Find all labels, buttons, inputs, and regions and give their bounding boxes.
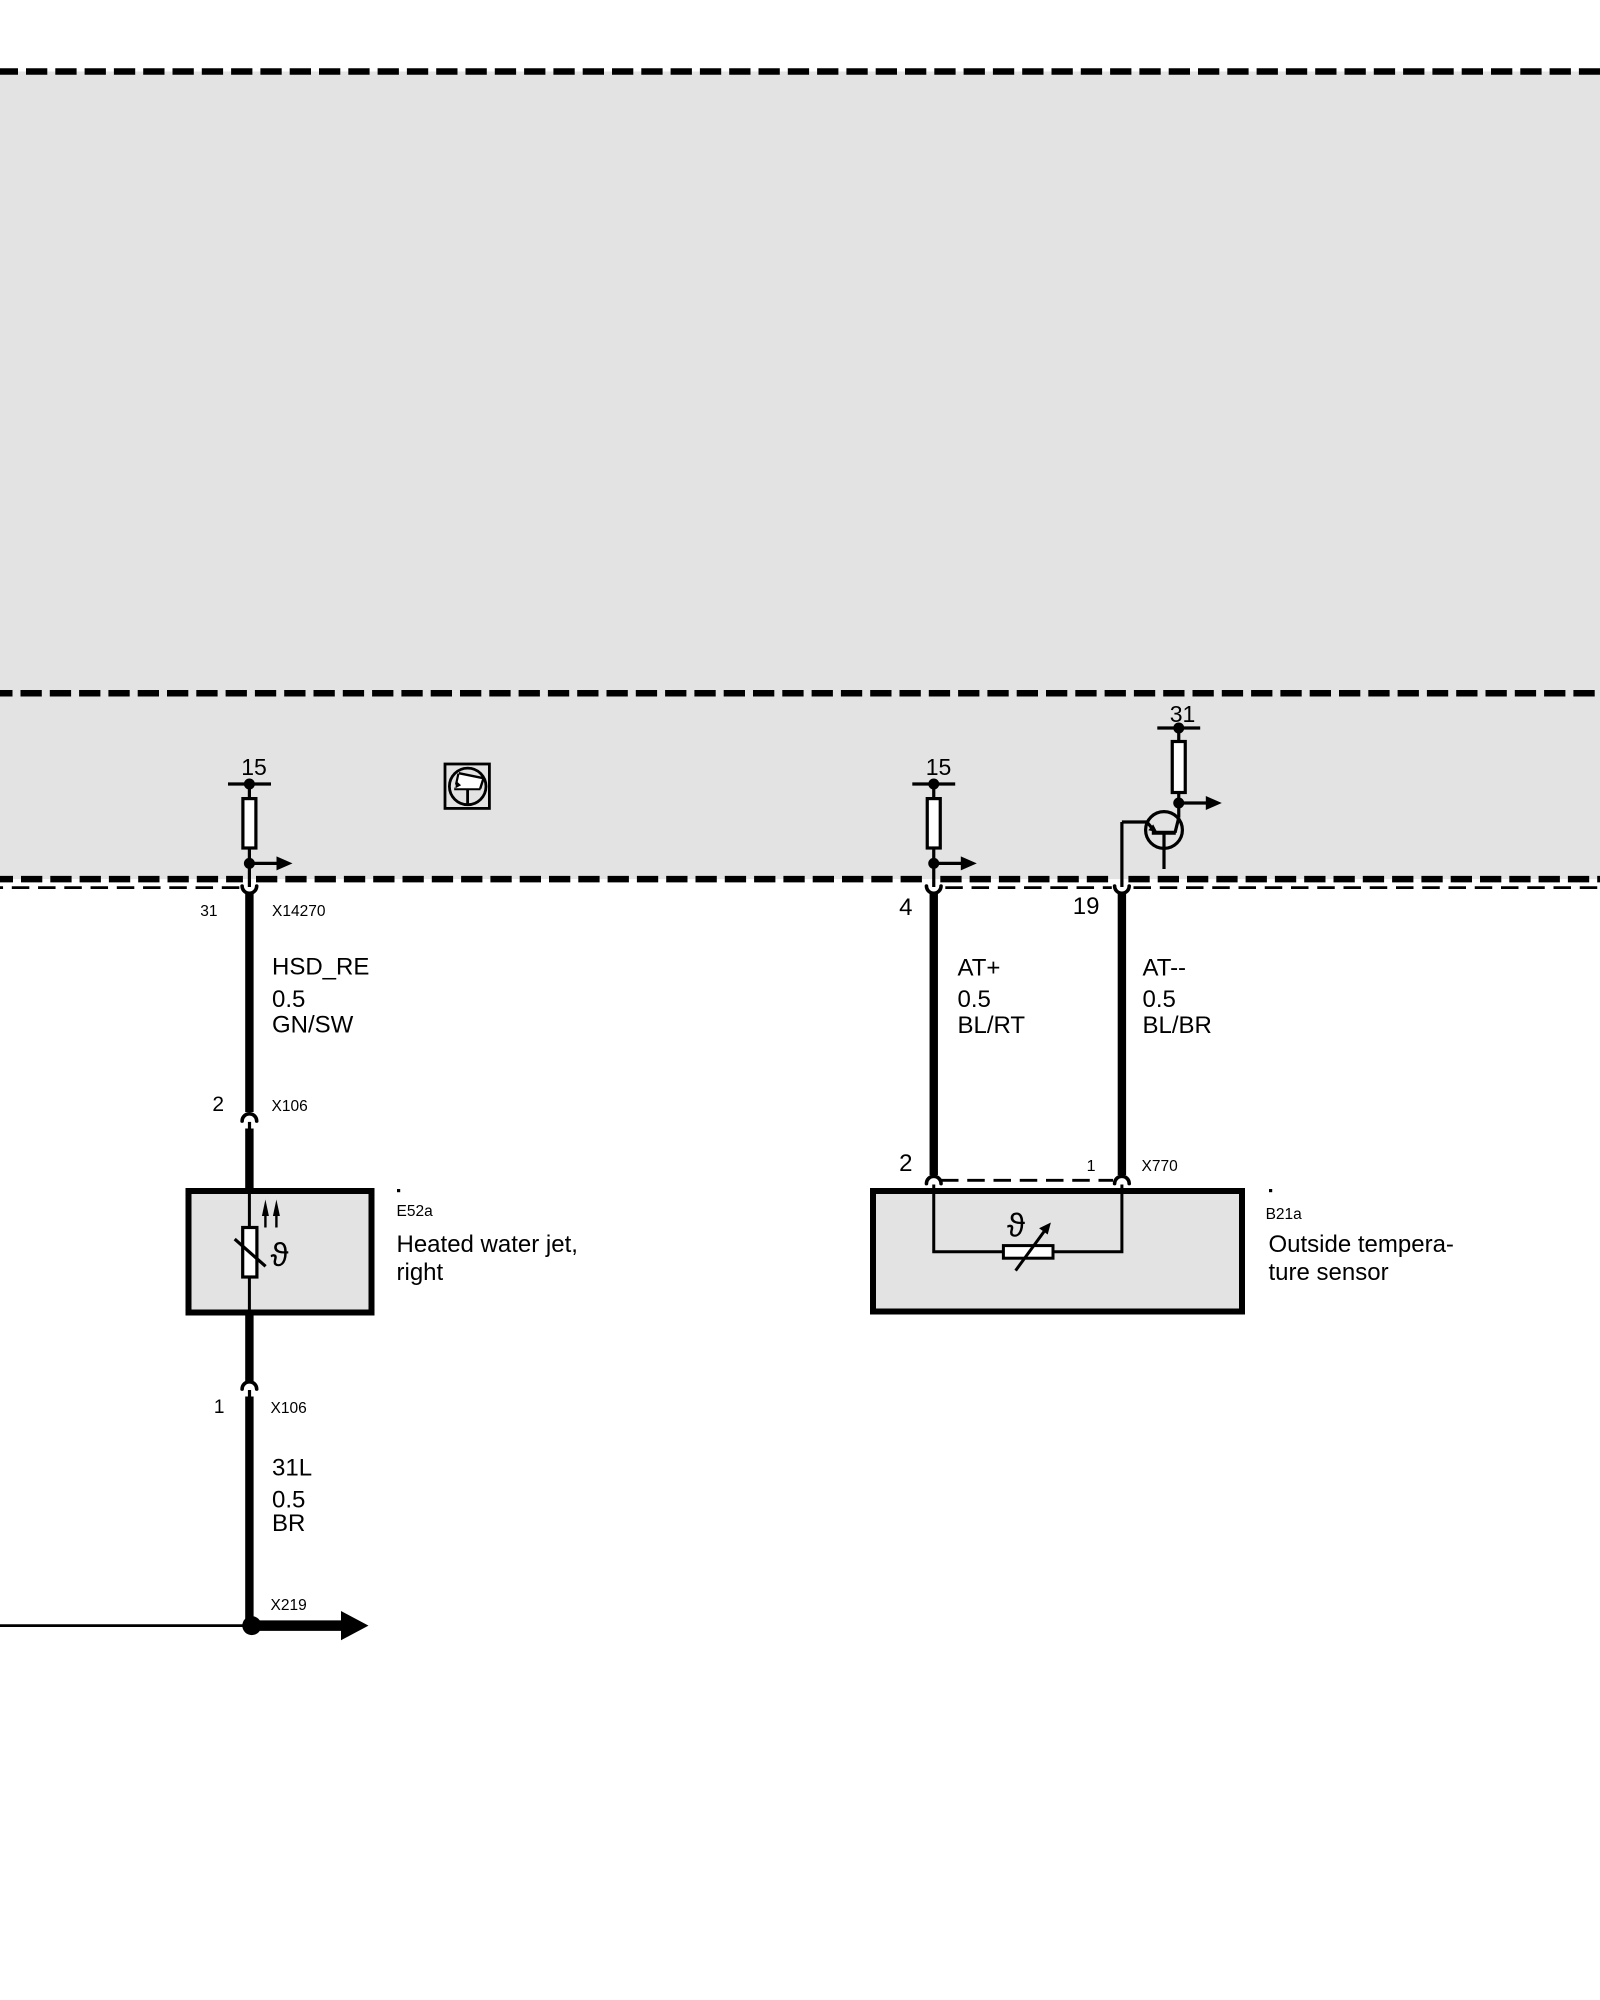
svg-text:1: 1 — [214, 1397, 225, 1418]
svg-text:ϑ: ϑ — [271, 1236, 289, 1273]
svg-text:B21a: B21a — [1266, 1206, 1303, 1223]
svg-text:4: 4 — [899, 894, 912, 921]
svg-text:X219: X219 — [271, 1597, 307, 1614]
svg-text:2: 2 — [212, 1093, 224, 1116]
svg-text:0.5: 0.5 — [958, 986, 991, 1013]
svg-text:E52a: E52a — [397, 1203, 434, 1220]
svg-text:31: 31 — [200, 903, 217, 920]
svg-text:BL/RT: BL/RT — [958, 1012, 1026, 1039]
svg-text:31L: 31L — [272, 1455, 312, 1482]
svg-text:0.5: 0.5 — [1143, 986, 1176, 1013]
svg-text:GN/SW: GN/SW — [272, 1012, 354, 1039]
svg-text:1: 1 — [1087, 1158, 1096, 1175]
svg-text:AT--: AT-- — [1143, 955, 1187, 982]
svg-text:X106: X106 — [271, 1400, 307, 1417]
svg-text:ϑ: ϑ — [1007, 1207, 1025, 1244]
svg-text:AT+: AT+ — [958, 955, 1001, 982]
svg-text:15: 15 — [241, 754, 267, 780]
svg-text:Heated water jet,: Heated water jet, — [397, 1231, 578, 1258]
svg-text:Outside tempera-: Outside tempera- — [1269, 1231, 1454, 1258]
svg-text:19: 19 — [1073, 893, 1100, 920]
svg-text:right: right — [397, 1259, 444, 1286]
svg-text:15: 15 — [926, 754, 952, 780]
svg-text:ture sensor: ture sensor — [1269, 1259, 1389, 1286]
svg-text:X14270: X14270 — [272, 903, 326, 920]
svg-text:0.5: 0.5 — [272, 986, 305, 1013]
svg-text:BL/BR: BL/BR — [1143, 1012, 1212, 1039]
svg-text:2: 2 — [899, 1150, 912, 1177]
svg-text:X770: X770 — [1142, 1158, 1179, 1175]
svg-text:HSD_RE: HSD_RE — [272, 954, 369, 981]
svg-text:X106: X106 — [272, 1098, 308, 1115]
svg-text:31: 31 — [1170, 701, 1196, 727]
svg-text:BR: BR — [272, 1510, 305, 1537]
